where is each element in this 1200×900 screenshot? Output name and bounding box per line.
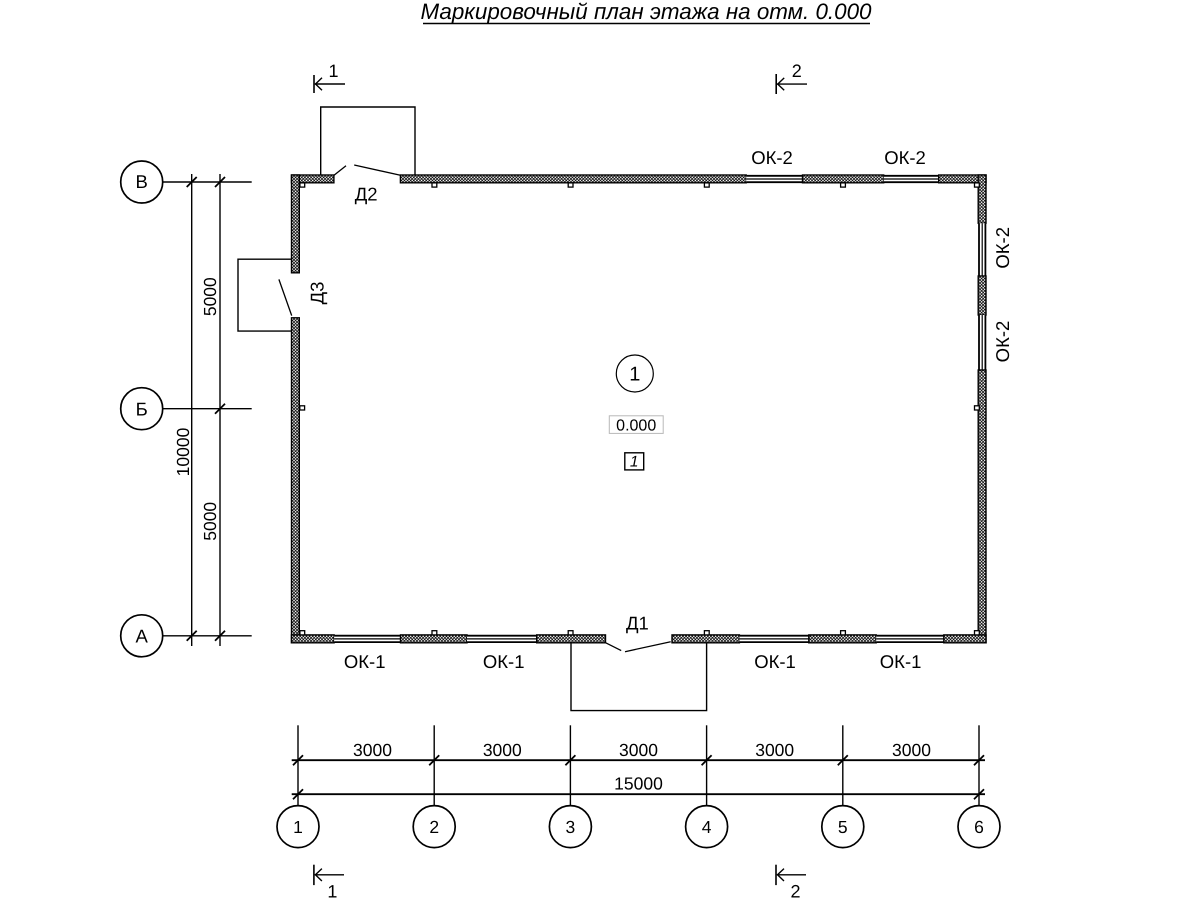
svg-text:5: 5 xyxy=(838,817,848,837)
svg-text:ОК-1: ОК-1 xyxy=(754,651,796,672)
svg-text:3000: 3000 xyxy=(892,740,931,760)
svg-text:1: 1 xyxy=(328,61,338,81)
svg-text:Д2: Д2 xyxy=(355,184,378,205)
svg-text:0.000: 0.000 xyxy=(616,417,656,434)
svg-text:15000: 15000 xyxy=(614,773,663,793)
svg-text:2: 2 xyxy=(429,817,439,837)
svg-text:Маркировочный план этажа на от: Маркировочный план этажа на отм. 0.000 xyxy=(421,0,873,24)
svg-text:1: 1 xyxy=(293,817,303,837)
svg-text:2: 2 xyxy=(792,61,802,81)
svg-text:3000: 3000 xyxy=(353,740,392,760)
svg-text:2: 2 xyxy=(790,882,800,900)
svg-text:1: 1 xyxy=(629,364,640,386)
svg-text:1: 1 xyxy=(327,882,337,900)
svg-text:ОК-1: ОК-1 xyxy=(344,651,386,672)
svg-text:4: 4 xyxy=(702,817,712,837)
svg-text:10000: 10000 xyxy=(173,427,193,476)
svg-text:3000: 3000 xyxy=(483,740,522,760)
svg-text:5000: 5000 xyxy=(200,502,220,541)
svg-text:1: 1 xyxy=(630,453,639,470)
svg-text:3: 3 xyxy=(566,817,576,837)
svg-text:ОК-2: ОК-2 xyxy=(992,227,1013,269)
svg-text:В: В xyxy=(136,171,148,192)
svg-text:ОК-2: ОК-2 xyxy=(751,147,793,168)
svg-text:ОК-2: ОК-2 xyxy=(992,321,1013,363)
svg-text:6: 6 xyxy=(974,817,984,837)
svg-text:ОК-2: ОК-2 xyxy=(884,147,926,168)
svg-text:А: А xyxy=(136,626,149,647)
svg-text:Д1: Д1 xyxy=(626,613,649,634)
svg-text:3000: 3000 xyxy=(619,740,658,760)
svg-text:Б: Б xyxy=(136,398,148,419)
svg-text:ОК-1: ОК-1 xyxy=(880,651,922,672)
svg-text:3000: 3000 xyxy=(755,740,794,760)
svg-text:5000: 5000 xyxy=(200,277,220,316)
svg-text:ОК-1: ОК-1 xyxy=(483,651,525,672)
svg-text:Д3: Д3 xyxy=(307,282,328,305)
